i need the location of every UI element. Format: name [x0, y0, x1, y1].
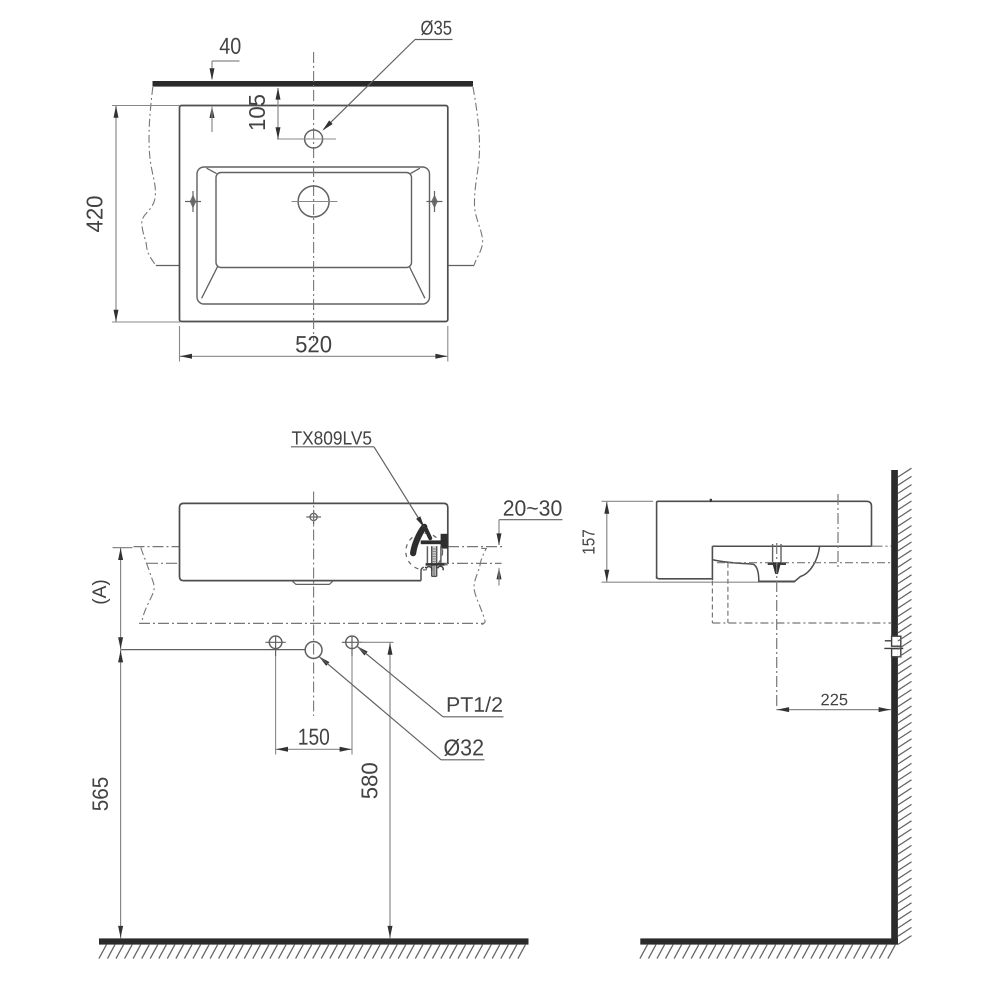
svg-text:Ø35: Ø35 [421, 18, 453, 40]
svg-text:150: 150 [298, 724, 330, 750]
svg-text:565: 565 [88, 777, 113, 812]
svg-text:(A): (A) [90, 579, 111, 605]
svg-text:420: 420 [81, 196, 107, 233]
svg-text:225: 225 [821, 691, 849, 709]
svg-text:PT1/2: PT1/2 [446, 694, 503, 717]
svg-text:105: 105 [244, 94, 270, 131]
svg-text:580: 580 [357, 762, 383, 799]
svg-text:157: 157 [578, 529, 598, 555]
svg-text:Ø32: Ø32 [443, 734, 484, 760]
svg-text:40: 40 [219, 33, 241, 59]
svg-text:20~30: 20~30 [503, 496, 563, 521]
svg-text:520: 520 [295, 331, 332, 357]
